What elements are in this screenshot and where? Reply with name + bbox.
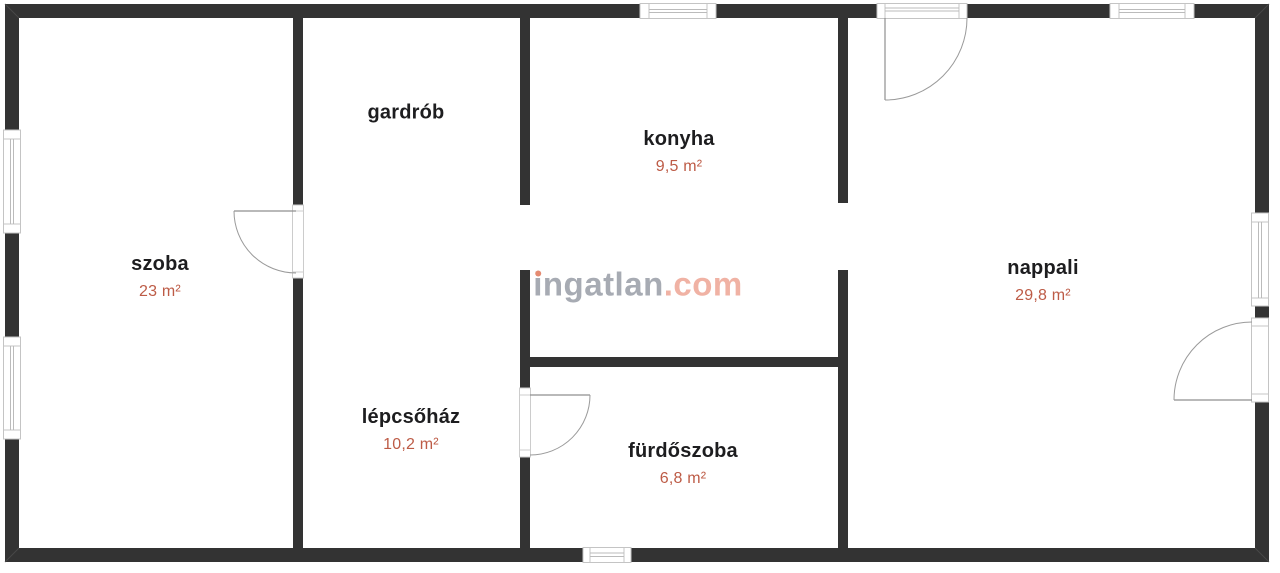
room-gardrob: gardrób xyxy=(368,102,445,125)
room-szoba-area: 23 m² xyxy=(139,283,181,301)
wall-nappali-lower xyxy=(838,270,848,548)
watermark-i-dot-icon xyxy=(535,270,541,276)
wall-top xyxy=(5,4,1269,18)
window-left-1-icon xyxy=(4,130,21,233)
wall-szoba-lower xyxy=(293,278,303,548)
door-nappali-icon xyxy=(1174,318,1269,402)
window-left-2-icon xyxy=(4,337,21,439)
room-gardrob-name: gardrób xyxy=(368,102,445,125)
ingatlan-watermark: ingatlan.com xyxy=(533,268,743,301)
room-konyha: konyha 9,5 m² xyxy=(643,128,714,176)
wall-mid-lower xyxy=(520,457,530,548)
room-lepcsohaz: lépcsőház 10,2 m² xyxy=(362,406,461,454)
wall-furdo-top xyxy=(524,357,844,367)
watermark-brand-text: ingatlan xyxy=(533,266,664,303)
room-nappali-name: nappali xyxy=(1007,257,1078,280)
wall-mid-upper xyxy=(520,18,530,205)
watermark-suffix: .com xyxy=(664,266,743,303)
wall-left xyxy=(5,4,19,562)
door-furdoszoba-icon xyxy=(520,388,591,457)
door-entry-icon xyxy=(877,4,967,101)
door-szoba-icon xyxy=(234,205,304,278)
room-lepcsohaz-name: lépcsőház xyxy=(362,406,461,429)
wall-nappali-upper xyxy=(838,18,848,203)
room-furdoszoba-name: fürdőszoba xyxy=(628,440,738,463)
wall-szoba-upper xyxy=(293,18,303,205)
room-nappali-area: 29,8 m² xyxy=(1015,287,1071,305)
window-top-konyha-icon xyxy=(640,4,716,19)
room-lepcsohaz-area: 10,2 m² xyxy=(383,436,439,454)
window-right-icon xyxy=(1252,213,1269,306)
room-nappali: nappali 29,8 m² xyxy=(1007,257,1078,305)
window-bottom-icon xyxy=(583,548,631,563)
room-furdoszoba: fürdőszoba 6,8 m² xyxy=(628,440,738,488)
room-konyha-name: konyha xyxy=(643,128,714,151)
room-szoba: szoba 23 m² xyxy=(131,253,189,301)
window-top-nappali-icon xyxy=(1110,4,1194,19)
room-szoba-name: szoba xyxy=(131,253,189,276)
wall-bottom xyxy=(5,548,1269,562)
room-konyha-area: 9,5 m² xyxy=(656,158,703,176)
floorplan-page: szoba 23 m² gardrób konyha 9,5 m² nappal… xyxy=(0,0,1280,573)
room-furdoszoba-area: 6,8 m² xyxy=(660,470,707,488)
wall-mid-middle xyxy=(520,270,530,388)
watermark-brand: ingatlan xyxy=(533,268,664,301)
